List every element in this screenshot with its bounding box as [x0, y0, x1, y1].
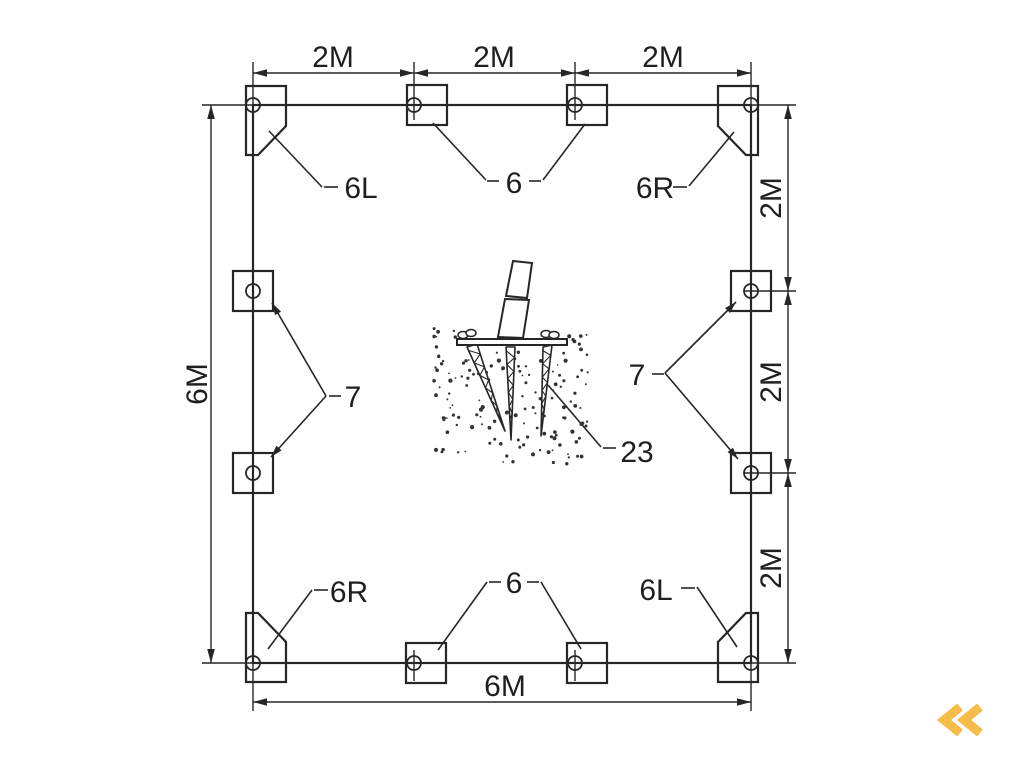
- plan-outline: [253, 105, 751, 663]
- ground-stakes: [467, 344, 552, 440]
- part-label-ground-anchor: 23: [620, 436, 653, 469]
- part-label-top-left: 6L: [344, 172, 377, 205]
- dim-label-right-1: 2M: [755, 177, 788, 219]
- dim-label-top-1: 2M: [312, 41, 354, 74]
- dim-label-left: 6M: [181, 363, 214, 405]
- part-label-bottom-center: 6: [506, 567, 523, 600]
- dim-label-bottom: 6M: [484, 670, 526, 703]
- base-plates: [233, 85, 771, 683]
- dim-label-top-3: 2M: [642, 41, 684, 74]
- anchor-pole: [498, 261, 532, 338]
- part-label-bottom-right: 6L: [639, 574, 672, 607]
- corner-plates: [246, 86, 758, 682]
- drawing-canvas: 2M 2M 2M 2M 2M 2M 6M 6M 6L 6 6R 7 7 23 6…: [0, 0, 1024, 768]
- dim-label-right-3: 2M: [755, 547, 788, 589]
- dimension-lines: [211, 73, 788, 702]
- anchor-point-markers: [246, 98, 758, 670]
- dimension-arrows: [207, 69, 792, 706]
- part-label-top-right: 6R: [636, 172, 674, 205]
- dim-label-top-2: 2M: [473, 41, 515, 74]
- part-label-bottom-left: 6R: [330, 576, 368, 609]
- extension-lines: [202, 62, 796, 711]
- part-label-right: 7: [629, 359, 646, 392]
- anchor-layout-plan: 2M 2M 2M 2M 2M 2M 6M 6M 6L 6 6R 7 7 23 6…: [0, 0, 1024, 768]
- part-label-top-center: 6: [506, 167, 523, 200]
- part-label-left: 7: [345, 381, 362, 414]
- dim-label-right-2: 2M: [755, 361, 788, 403]
- logo-chevrons-icon: [944, 707, 980, 733]
